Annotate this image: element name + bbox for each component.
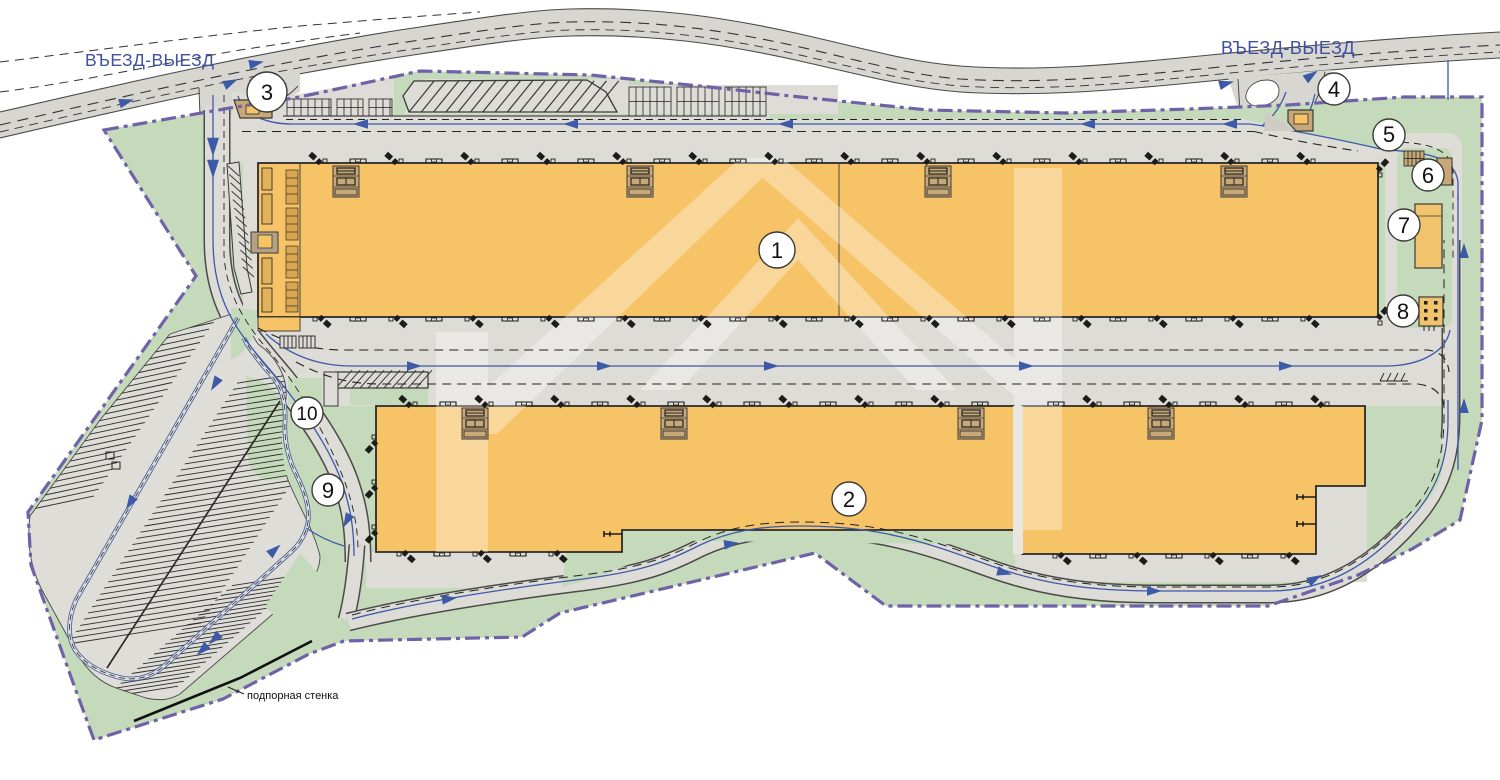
svg-text:1: 1 [771, 238, 783, 263]
svg-text:ВЪЕЗД-ВЫЕЗД: ВЪЕЗД-ВЫЕЗД [85, 50, 214, 70]
svg-text:5: 5 [1383, 122, 1395, 147]
svg-text:4: 4 [1328, 77, 1340, 102]
svg-text:10: 10 [296, 404, 317, 425]
svg-text:3: 3 [261, 80, 273, 105]
svg-text:6: 6 [1422, 163, 1434, 188]
svg-text:8: 8 [1397, 299, 1409, 324]
svg-text:9: 9 [322, 478, 334, 503]
svg-text:2: 2 [843, 487, 855, 512]
svg-text:подпорная стенка: подпорная стенка [247, 690, 339, 702]
svg-text:7: 7 [1398, 213, 1410, 238]
svg-text:ВЪЕЗД-ВЫЕЗД: ВЪЕЗД-ВЫЕЗД [1221, 38, 1355, 58]
